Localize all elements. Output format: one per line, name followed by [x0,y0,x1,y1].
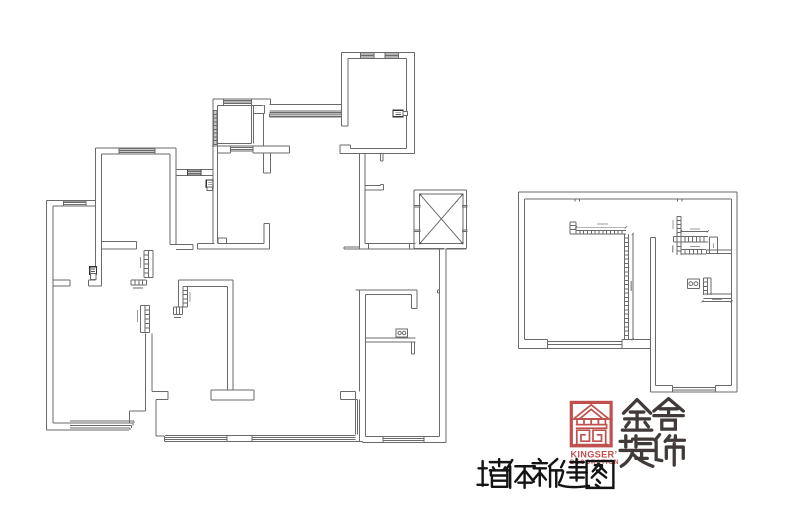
svg-text:KINGSER’: KINGSER’ [571,449,618,459]
